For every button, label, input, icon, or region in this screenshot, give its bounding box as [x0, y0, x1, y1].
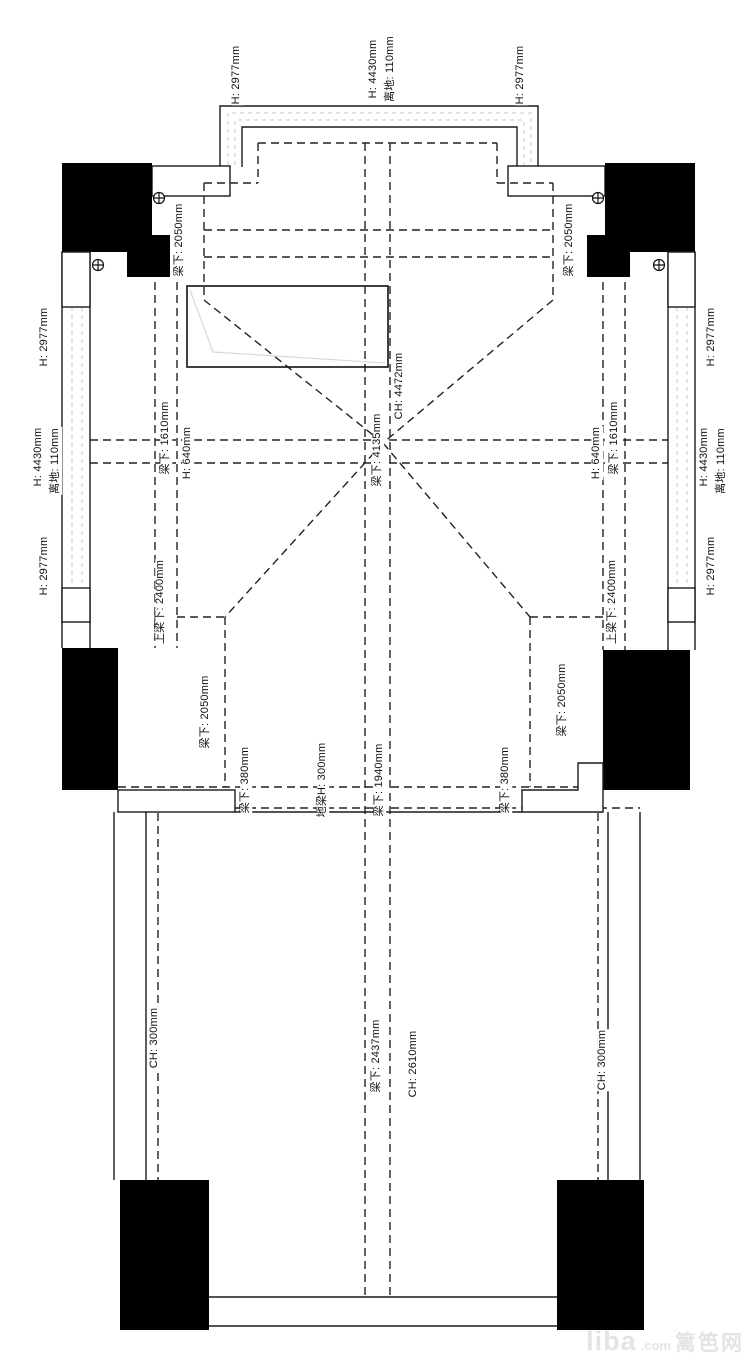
label-beam-right-1610: 梁下: 1610mm	[609, 401, 621, 476]
pier-right-top	[668, 252, 695, 307]
lower-bottom-wall	[209, 1297, 557, 1326]
label-leftwall-ground-mid: 离地: 110mm	[50, 427, 62, 495]
column-bottom-right	[557, 1180, 644, 1330]
column-mid-right	[603, 650, 690, 790]
beam-dashed-lines	[90, 143, 668, 1297]
label-ch-right-300: CH: 300mm	[597, 1029, 609, 1091]
wall-band-right	[508, 166, 605, 196]
pier-right-bottom	[668, 588, 695, 622]
label-bay-ground-mid: 离地: 110mm	[385, 35, 397, 103]
ceiling-opening	[187, 286, 388, 367]
label-ch-left-300: CH: 300mm	[149, 1007, 161, 1069]
ceiling-opening-frame	[187, 286, 388, 367]
watermark-liba-text: liba	[586, 1326, 637, 1357]
label-ch-2610: CH: 2610mm	[408, 1030, 420, 1099]
watermark-cn-text: 篱笆网	[675, 1327, 744, 1357]
label-bay-height-mid: H: 4430mm	[368, 39, 380, 100]
label-upper-beam-right-2400: 上梁下: 2400mm	[607, 559, 619, 645]
label-beam-2437: 梁下: 2437mm	[371, 1019, 383, 1094]
label-beam-bottomright-2050: 梁下: 2050mm	[557, 663, 569, 738]
lower-left-wall	[114, 812, 146, 1180]
label-upper-beam-left-2400: 上梁下: 2400mm	[155, 559, 167, 645]
label-height-right-640: H: 640mm	[591, 426, 603, 480]
pier-left-top	[62, 252, 90, 307]
label-height-left-640: H: 640mm	[182, 426, 194, 480]
bay-outer-wall	[220, 106, 538, 167]
label-beam-top-right-2050: 梁下: 2050mm	[564, 203, 576, 278]
wall-band-left	[152, 166, 230, 196]
bay-window-walls	[220, 106, 538, 167]
label-floor-beam-300: 地梁H: 300mm	[317, 742, 329, 819]
label-rightwall-ground-mid: 离地: 110mm	[716, 427, 728, 495]
ceiling-opening-fold-line	[190, 290, 385, 363]
label-beam-right-380: 梁下: 380mm	[500, 746, 512, 815]
survey-point-icon	[593, 193, 604, 204]
watermark: liba .com 篱笆网	[586, 1326, 744, 1357]
step-left	[118, 790, 235, 812]
label-beam-center-4135: 梁下: 4135mm	[372, 413, 384, 488]
label-beam-bottomleft-2050: 梁下: 2050mm	[200, 675, 212, 750]
floor-plan-drawing	[0, 0, 750, 1361]
label-beam-left-1610: 梁下: 1610mm	[160, 401, 172, 476]
survey-point-icon	[154, 193, 165, 204]
survey-point-icon	[654, 260, 665, 271]
label-beam-top-left-2050: 梁下: 2050mm	[174, 203, 186, 278]
floor-plan-canvas: H: 2977mm H: 4430mm 离地: 110mm H: 2977mm …	[0, 0, 750, 1361]
label-rightwall-height-top: H: 2977mm	[706, 307, 718, 368]
lower-right-wall	[608, 812, 640, 1180]
pier-left-bottom	[62, 588, 90, 622]
label-ceiling-height-4472: CH: 4472mm	[394, 352, 406, 421]
bay-inner-wall	[242, 127, 517, 167]
column-mid-left	[62, 648, 118, 790]
label-leftwall-height-mid: H: 4430mm	[33, 427, 45, 488]
label-rightwall-height-bot: H: 2977mm	[706, 536, 718, 597]
label-beam-center-1940: 梁下: 1940mm	[374, 743, 386, 818]
label-leftwall-height-top: H: 2977mm	[39, 307, 51, 368]
label-bay-height-left: H: 2977mm	[231, 45, 243, 106]
label-beam-left-380: 梁下: 380mm	[240, 746, 252, 815]
label-bay-height-right: H: 2977mm	[515, 45, 527, 106]
survey-point-icon	[93, 260, 104, 271]
column-bottom-left	[120, 1180, 209, 1330]
label-leftwall-height-bot: H: 2977mm	[39, 536, 51, 597]
label-rightwall-height-mid: H: 4430mm	[699, 427, 711, 488]
watermark-com-text: .com	[641, 1338, 671, 1353]
bay-window-glazing-lines	[228, 113, 531, 165]
